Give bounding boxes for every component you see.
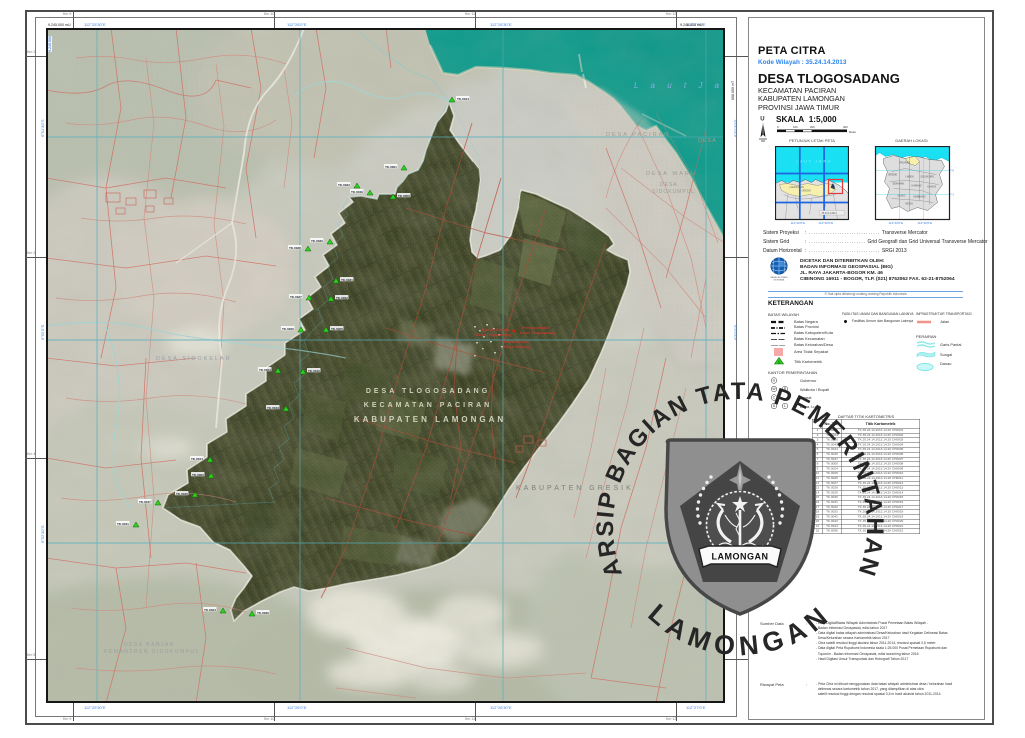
svg-text:BROND: BROND (889, 174, 898, 177)
svg-text:TK.0000: TK.0000 (192, 473, 204, 477)
svg-text:TK.0041: TK.0041 (117, 522, 129, 526)
svg-text:DESA SIDOKELAR: DESA SIDOKELAR (156, 356, 232, 362)
svg-text:GEOSPASIAL: GEOSPASIAL (773, 279, 784, 282)
svg-text:SEKARAN: SEKARAN (893, 183, 905, 186)
svg-text:KECAMATAN PACIRAN: KECAMATAN PACIRAN (364, 402, 492, 409)
svg-text:Tlogo Sadang: Tlogo Sadang (503, 344, 530, 349)
svg-text:TK.0046: TK.0046 (176, 492, 188, 496)
svg-text:TK.0043: TK.0043 (267, 406, 279, 410)
svg-text:KEMANTREN SIDOKUMPUL: KEMANTREN SIDOKUMPUL (104, 649, 200, 655)
svg-text:DESA BANJAR: DESA BANJAR (124, 642, 175, 648)
svg-text:TK.0034: TK.0034 (204, 608, 216, 612)
svg-text:35.24.14.2013: 35.24.14.2013 (822, 212, 838, 215)
svg-text:TK.0024: TK.0024 (259, 368, 271, 372)
svg-text:112°20'0"E: 112°20'0"E (791, 221, 806, 225)
svg-text:DESA TLOGOSADANG: DESA TLOGOSADANG (366, 388, 490, 395)
svg-text:7°0'0"S: 7°0'0"S (950, 169, 954, 173)
svg-text:7°10'0"S: 7°10'0"S (950, 193, 954, 197)
svg-text:Desa Tlogosadang: Desa Tlogosadang (476, 332, 512, 337)
svg-text:DESA: DESA (660, 182, 678, 188)
svg-text:MODO: MODO (906, 203, 914, 206)
svg-text:DESA PACIRAN: DESA PACIRAN (606, 132, 670, 138)
svg-text:PACIRAN: PACIRAN (900, 162, 911, 165)
svg-text:TK.0044: TK.0044 (191, 457, 203, 461)
svg-text:SIDOKUMPUL: SIDOKUMPUL (652, 189, 695, 195)
svg-text:DESA: DESA (698, 138, 717, 144)
svg-text:LAMONGAN: LAMONGAN (712, 552, 769, 562)
svg-text:TK.0042: TK.0042 (308, 369, 320, 373)
svg-text:112°20'0"E: 112°20'0"E (889, 221, 904, 225)
svg-text:TK.0027: TK.0027 (290, 295, 302, 299)
svg-text:TK.0026: TK.0026 (282, 327, 294, 331)
svg-text:200: 200 (810, 125, 815, 129)
svg-text:DESA WARU: DESA WARU (646, 171, 697, 177)
svg-text:TK.0030: TK.0030 (311, 239, 323, 243)
svg-text:KARANG: KARANG (912, 185, 922, 188)
svg-text:SUGIO: SUGIO (898, 195, 906, 198)
svg-text:TK.0031: TK.0031 (341, 278, 353, 282)
svg-text:SOLOKURO: SOLOKURO (921, 176, 935, 179)
svg-text:TK.0028: TK.0028 (289, 246, 301, 250)
svg-text:KEMBANG: KEMBANG (914, 196, 926, 199)
svg-text:KABUPATEN LAMONGAN: KABUPATEN LAMONGAN (354, 415, 506, 424)
svg-text:TK.0344: TK.0344 (457, 97, 469, 101)
svg-text:TK.0025: TK.0025 (331, 327, 343, 331)
svg-text:TK.0050: TK.0050 (398, 194, 410, 198)
svg-text:112°30'0"E: 112°30'0"E (819, 221, 834, 225)
svg-text:TK.0049: TK.0049 (351, 190, 363, 194)
svg-text:L a u t J a w a: L a u t J a w a (634, 81, 725, 90)
svg-text:TK.0033: TK.0033 (338, 183, 350, 187)
svg-text:TK.0047: TK.0047 (139, 500, 151, 504)
svg-text:100: 100 (793, 125, 798, 129)
svg-text:Desa Tlogosadang: Desa Tlogosadang (520, 330, 556, 335)
svg-text:TK.0036: TK.0036 (257, 611, 269, 615)
svg-text:400: 400 (843, 125, 848, 129)
svg-text:TK.0032: TK.0032 (336, 296, 348, 300)
svg-text:0: 0 (777, 125, 779, 129)
svg-text:112°30'0"E: 112°30'0"E (918, 221, 933, 225)
svg-text:TK.0001: TK.0001 (385, 165, 397, 169)
svg-text:GRESIK: GRESIK (802, 190, 812, 193)
svg-text:DUKUN: DUKUN (928, 186, 937, 189)
svg-text:LAREN: LAREN (906, 176, 914, 179)
svg-text:Meter: Meter (849, 130, 856, 134)
svg-text:U: U (760, 117, 764, 123)
svg-text:LAUT JAWA: LAUT JAWA (797, 160, 833, 164)
